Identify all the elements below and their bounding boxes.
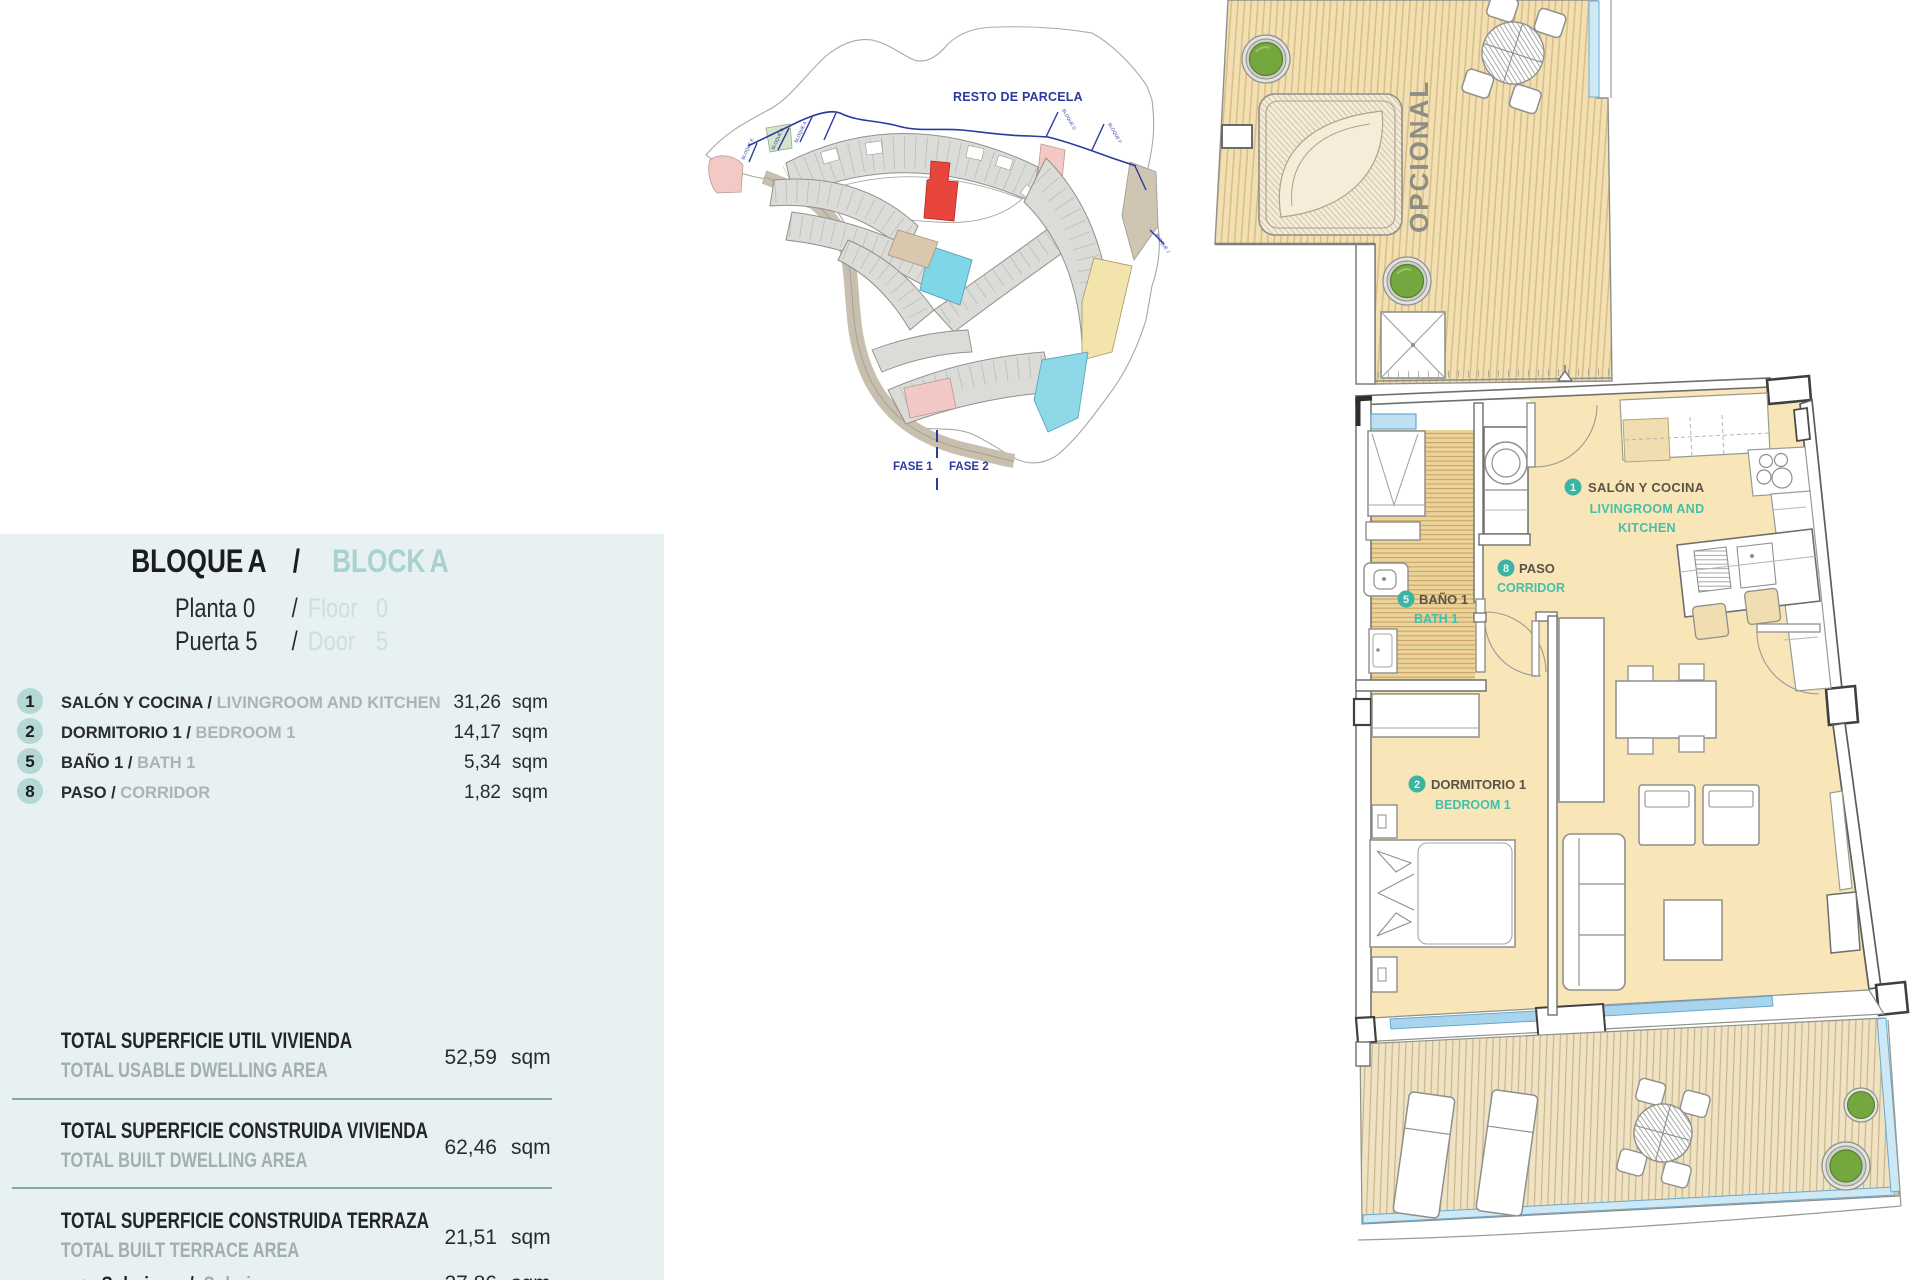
svg-text:5: 5 [25,752,34,771]
svg-text:BATH 1: BATH 1 [1414,612,1458,626]
svg-text:sqm: sqm [512,752,548,773]
svg-text:TOTAL SUPERFICIE CONSTRUIDA VI: TOTAL SUPERFICIE CONSTRUIDA VIVIENDA [61,1119,428,1144]
svg-text:21,51: 21,51 [444,1226,497,1249]
svg-text:TOTAL BUILT TERRACE AREA: TOTAL BUILT TERRACE AREA [61,1238,300,1261]
svg-text:1: 1 [1570,482,1576,494]
svg-text:TOTAL SUPERFICIE CONSTRUIDA TE: TOTAL SUPERFICIE CONSTRUIDA TERRAZA [61,1209,429,1234]
svg-text:TOTAL SUPERFICIE UTIL VIVIENDA: TOTAL SUPERFICIE UTIL VIVIENDA [61,1029,352,1054]
svg-text:52,59: 52,59 [444,1046,497,1069]
svg-text:8: 8 [1503,563,1509,575]
svg-text:5,34: 5,34 [464,752,501,773]
svg-text:1: 1 [25,692,34,711]
svg-text:1,82: 1,82 [464,782,501,803]
svg-text:BAÑO 1 / BATH 1: BAÑO 1 / BATH 1 [61,752,195,772]
svg-text:CORRIDOR: CORRIDOR [1497,581,1565,595]
svg-text:sqm: sqm [511,1046,551,1069]
svg-text:SALÓN Y COCINA / LIVINGROOM AN: SALÓN Y COCINA / LIVINGROOM AND KITCHEN [61,693,441,712]
svg-text:sqm: sqm [512,692,548,713]
svg-text:KITCHEN: KITCHEN [1618,521,1676,535]
svg-text:RESTO DE PARCELA: RESTO DE PARCELA [953,90,1083,104]
svg-text:14,17: 14,17 [453,722,501,743]
svg-text:OPCIONAL: OPCIONAL [1404,80,1434,233]
svg-text:31,26: 31,26 [453,692,501,713]
svg-text:PASO: PASO [1519,561,1555,576]
svg-text:TOTAL USABLE DWELLING AREA: TOTAL USABLE DWELLING AREA [61,1058,328,1081]
svg-text:5: 5 [1403,594,1409,606]
svg-text:27,86: 27,86 [444,1272,497,1280]
svg-text:DORMITORIO 1: DORMITORIO 1 [1431,777,1526,792]
svg-text:TOTAL BUILT DWELLING AREA: TOTAL BUILT DWELLING AREA [61,1148,308,1171]
svg-text:FASE 2: FASE 2 [949,461,989,473]
svg-text:62,46: 62,46 [444,1136,497,1159]
svg-text:LIVINGROOM AND: LIVINGROOM AND [1590,502,1705,516]
svg-text:SALÓN Y COCINA: SALÓN Y COCINA [1588,480,1705,495]
svg-text:FASE 1: FASE 1 [893,461,933,473]
svg-text:2: 2 [1414,779,1420,791]
svg-text:sqm: sqm [512,722,548,743]
svg-text:sqm: sqm [511,1226,551,1249]
svg-text:sqm: sqm [511,1272,551,1280]
svg-text:PASO / CORRIDOR: PASO / CORRIDOR [61,784,210,802]
svg-text:2: 2 [25,722,34,741]
svg-text:sqm: sqm [511,1136,551,1159]
svg-text:BAÑO 1: BAÑO 1 [1419,592,1468,607]
svg-text:8: 8 [25,782,34,801]
svg-text:▲ Solarium / Solarium: ▲ Solarium / Solarium [75,1273,277,1280]
svg-text:sqm: sqm [512,782,548,803]
svg-text:DORMITORIO 1 / BEDROOM 1: DORMITORIO 1 / BEDROOM 1 [61,724,295,742]
svg-text:BEDROOM 1: BEDROOM 1 [1435,798,1511,812]
